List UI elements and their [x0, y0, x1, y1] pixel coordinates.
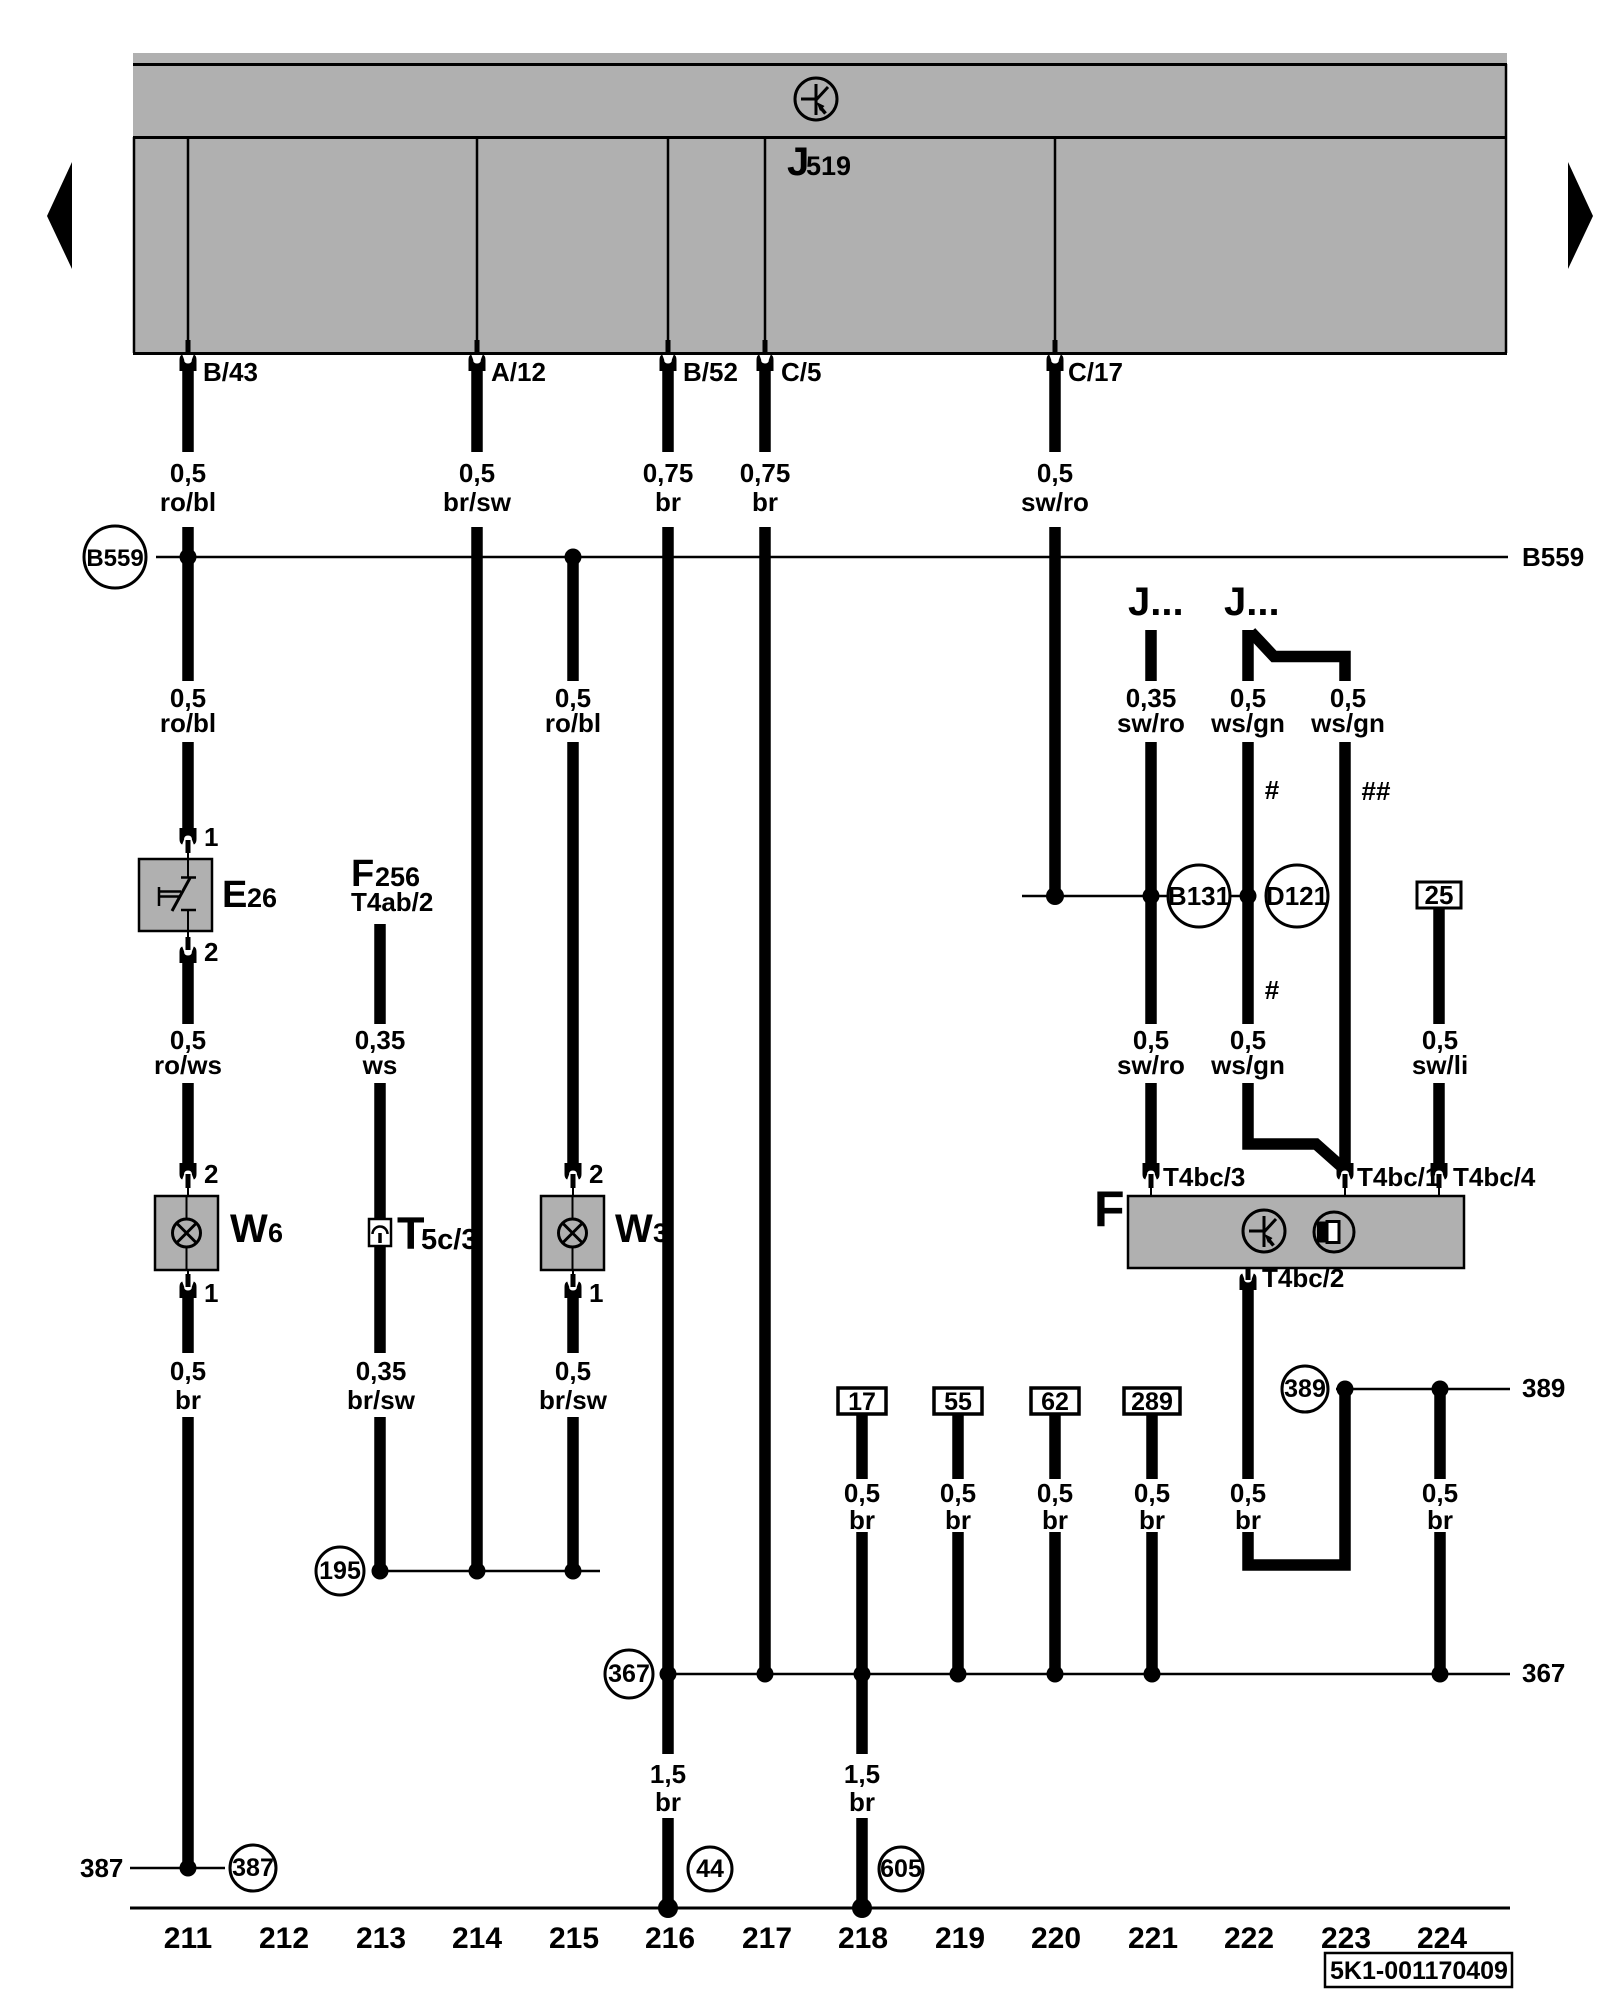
- svg-text:ws/gn: ws/gn: [1310, 708, 1385, 738]
- svg-text:br: br: [175, 1385, 201, 1415]
- svg-text:#: #: [1265, 975, 1280, 1005]
- svg-text:1: 1: [204, 1278, 218, 1308]
- svg-text:0,5: 0,5: [459, 458, 495, 488]
- svg-text:D121: D121: [1266, 881, 1328, 911]
- svg-text:0,5: 0,5: [844, 1478, 880, 1508]
- svg-text:br: br: [655, 1787, 681, 1817]
- svg-text:6: 6: [268, 1218, 283, 1248]
- svg-text:519: 519: [806, 151, 851, 181]
- svg-text:J...: J...: [1224, 580, 1280, 624]
- svg-text:217: 217: [742, 1922, 792, 1955]
- svg-text:220: 220: [1031, 1922, 1081, 1955]
- svg-text:387: 387: [80, 1853, 123, 1883]
- svg-text:sw/ro: sw/ro: [1021, 487, 1089, 517]
- svg-text:sw/ro: sw/ro: [1117, 1050, 1185, 1080]
- svg-text:br: br: [945, 1505, 971, 1535]
- svg-text:0,5: 0,5: [1037, 458, 1073, 488]
- svg-text:A/12: A/12: [491, 357, 546, 387]
- svg-text:1: 1: [589, 1278, 603, 1308]
- svg-text:ro/bl: ro/bl: [545, 708, 601, 738]
- svg-text:0,5: 0,5: [555, 1356, 591, 1386]
- svg-text:2: 2: [589, 1159, 603, 1189]
- svg-text:ro/ws: ro/ws: [154, 1050, 222, 1080]
- svg-text:0,5: 0,5: [1230, 1478, 1266, 1508]
- svg-text:213: 213: [356, 1922, 406, 1955]
- svg-text:br: br: [1042, 1505, 1068, 1535]
- svg-text:br: br: [752, 487, 778, 517]
- svg-text:#: #: [1265, 775, 1280, 805]
- svg-text:B131: B131: [1168, 881, 1230, 911]
- svg-text:0,75: 0,75: [643, 458, 694, 488]
- svg-text:44: 44: [696, 1855, 724, 1883]
- svg-text:55: 55: [944, 1388, 972, 1416]
- svg-text:ro/bl: ro/bl: [160, 708, 216, 738]
- svg-text:br: br: [1235, 1505, 1261, 1535]
- svg-text:222: 222: [1224, 1922, 1274, 1955]
- svg-text:25: 25: [1425, 880, 1454, 910]
- svg-text:T4bc/1: T4bc/1: [1357, 1162, 1439, 1192]
- svg-text:1,5: 1,5: [650, 1759, 686, 1789]
- svg-text:br: br: [1139, 1505, 1165, 1535]
- svg-text:B/43: B/43: [203, 357, 258, 387]
- svg-text:0,5: 0,5: [940, 1478, 976, 1508]
- svg-text:ws/gn: ws/gn: [1210, 708, 1285, 738]
- svg-text:ro/bl: ro/bl: [160, 487, 216, 517]
- svg-text:26: 26: [247, 883, 277, 913]
- svg-text:0,5: 0,5: [1422, 1478, 1458, 1508]
- svg-text:389: 389: [1284, 1375, 1326, 1403]
- svg-text:2: 2: [204, 937, 218, 967]
- svg-text:289: 289: [1131, 1388, 1173, 1416]
- svg-text:B/52: B/52: [683, 357, 738, 387]
- svg-text:224: 224: [1417, 1922, 1467, 1955]
- svg-text:605: 605: [880, 1855, 922, 1883]
- svg-text:br/sw: br/sw: [347, 1385, 416, 1415]
- svg-text:0,5: 0,5: [1037, 1478, 1073, 1508]
- svg-text:1,5: 1,5: [844, 1759, 880, 1789]
- svg-text:5K1-001170409: 5K1-001170409: [1330, 1957, 1508, 1985]
- svg-text:367: 367: [608, 1660, 650, 1688]
- svg-text:E: E: [222, 874, 247, 916]
- svg-text:T4bc/3: T4bc/3: [1163, 1162, 1245, 1192]
- svg-text:195: 195: [319, 1557, 361, 1585]
- svg-text:211: 211: [164, 1922, 212, 1955]
- svg-text:br: br: [849, 1505, 875, 1535]
- svg-text:0,35: 0,35: [356, 1356, 407, 1386]
- svg-text:T4bc/4: T4bc/4: [1453, 1162, 1536, 1192]
- svg-text:214: 214: [452, 1922, 502, 1955]
- svg-text:0,5: 0,5: [1134, 1478, 1170, 1508]
- svg-text:0,75: 0,75: [740, 458, 791, 488]
- svg-text:B559: B559: [86, 545, 143, 572]
- svg-text:2: 2: [204, 1159, 218, 1189]
- svg-text:5c/3: 5c/3: [421, 1224, 477, 1256]
- svg-text:T4bc/2: T4bc/2: [1262, 1263, 1344, 1293]
- svg-text:387: 387: [232, 1854, 274, 1882]
- svg-text:17: 17: [848, 1388, 876, 1416]
- svg-text:br/sw: br/sw: [443, 487, 512, 517]
- svg-text:3: 3: [653, 1218, 668, 1248]
- svg-text:367: 367: [1522, 1658, 1565, 1688]
- svg-text:sw/li: sw/li: [1412, 1050, 1468, 1080]
- svg-text:ws: ws: [362, 1050, 398, 1080]
- svg-text:223: 223: [1321, 1922, 1371, 1955]
- svg-text:br: br: [1427, 1505, 1453, 1535]
- svg-text:389: 389: [1522, 1373, 1565, 1403]
- svg-text:0,5: 0,5: [170, 1356, 206, 1386]
- svg-text:218: 218: [838, 1922, 888, 1955]
- svg-text:219: 219: [935, 1922, 985, 1955]
- svg-text:W: W: [615, 1207, 653, 1251]
- svg-text:br: br: [655, 487, 681, 517]
- svg-text:W: W: [230, 1207, 268, 1251]
- svg-text:##: ##: [1362, 776, 1391, 806]
- svg-text:sw/ro: sw/ro: [1117, 708, 1185, 738]
- svg-text:br/sw: br/sw: [539, 1385, 608, 1415]
- svg-text:J...: J...: [1128, 580, 1184, 624]
- svg-text:212: 212: [259, 1922, 309, 1955]
- svg-text:215: 215: [549, 1922, 599, 1955]
- svg-text:B559: B559: [1522, 542, 1584, 572]
- svg-text:C/5: C/5: [781, 357, 821, 387]
- svg-text:0,5: 0,5: [170, 458, 206, 488]
- svg-text:221: 221: [1128, 1922, 1178, 1955]
- svg-text:br: br: [849, 1787, 875, 1817]
- svg-text:C/17: C/17: [1068, 357, 1123, 387]
- svg-text:62: 62: [1041, 1388, 1069, 1416]
- svg-text:1: 1: [204, 822, 218, 852]
- svg-text:216: 216: [645, 1922, 695, 1955]
- svg-text:ws/gn: ws/gn: [1210, 1050, 1285, 1080]
- svg-text:T4ab/2: T4ab/2: [351, 887, 433, 917]
- svg-text:F: F: [1094, 1181, 1125, 1237]
